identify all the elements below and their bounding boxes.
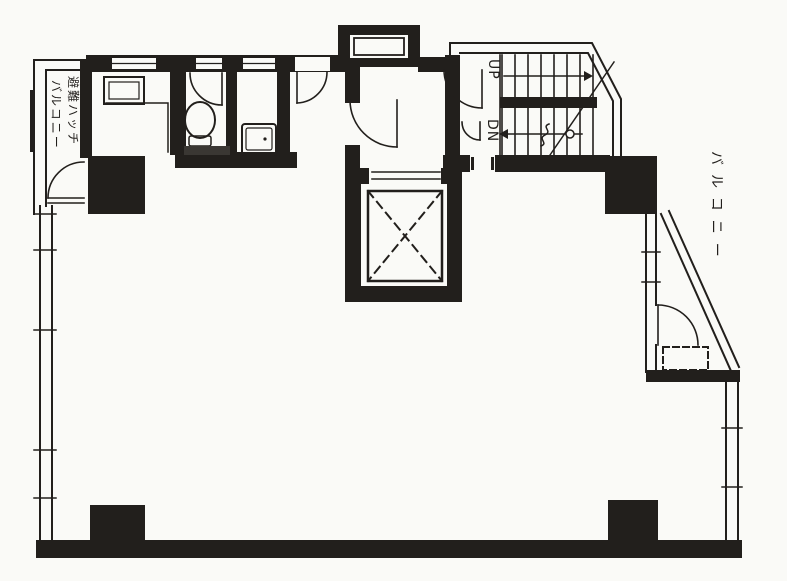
right-balcony <box>642 211 739 372</box>
door-arc <box>462 122 480 140</box>
right-balcony-bottom-wall <box>646 370 740 382</box>
partition-wall <box>277 55 290 155</box>
door-jamb-tick <box>471 157 474 170</box>
door-jamb <box>441 168 448 184</box>
door-opening <box>295 57 330 71</box>
top-wall-windows <box>112 57 330 71</box>
balcony-inner-wall <box>80 60 92 158</box>
floorplan-linework <box>0 0 787 581</box>
left-balcony-label-balcony: バルコニー <box>50 80 62 150</box>
column <box>605 156 657 214</box>
hatched-wall-band <box>184 146 230 155</box>
staircase <box>444 43 621 156</box>
faucet-dot <box>263 137 266 140</box>
partition-wall <box>170 55 186 155</box>
elevator <box>345 168 462 302</box>
counter-edge <box>106 103 168 152</box>
pipe-duct <box>338 25 420 67</box>
floor-plan: 避難ハッチ バルコニー バルコニー UP DN <box>0 0 787 581</box>
escape-hatch-dashed <box>663 347 708 370</box>
diagonal-edge <box>669 211 739 367</box>
right-window-wall <box>722 380 742 550</box>
toilet-icon <box>185 102 215 138</box>
sink-basin <box>246 128 272 150</box>
partition-wall <box>226 55 237 155</box>
door-arc <box>658 305 698 345</box>
fixture-inner <box>109 82 139 99</box>
door-arc <box>48 162 84 198</box>
door-arc <box>190 73 222 105</box>
left-window-wall <box>34 206 56 546</box>
stairs-up-label: UP <box>486 59 500 80</box>
stairs-down-label: DN <box>485 119 499 142</box>
door-jamb <box>362 168 369 184</box>
sink-room <box>242 124 276 155</box>
door-slot <box>366 168 444 184</box>
corridor-door <box>297 72 327 103</box>
stair-hall-wall <box>445 55 460 167</box>
bottom-wall <box>36 540 742 558</box>
column <box>88 156 145 214</box>
left-balcony-door <box>48 162 84 203</box>
mid-landing-wall <box>500 97 597 108</box>
wall <box>30 90 35 152</box>
right-balcony-label: バルコニー <box>709 151 723 266</box>
break-symbol <box>541 124 549 146</box>
toilet-room <box>184 73 230 155</box>
left-balcony-label-escape-hatch: 避難ハッチ <box>67 76 79 146</box>
arrow-tail-circle <box>566 130 574 138</box>
door-arc <box>297 72 327 103</box>
fixture <box>104 77 144 104</box>
utility-alcove <box>104 77 168 152</box>
door-jamb-tick <box>491 157 494 170</box>
stair-bottom-wall <box>495 155 610 172</box>
door-arc <box>350 100 397 147</box>
elevator-hall-door <box>350 100 397 147</box>
arrow-head <box>584 71 593 81</box>
solid-walls <box>36 55 742 558</box>
elevator-hall-wall <box>345 145 360 170</box>
